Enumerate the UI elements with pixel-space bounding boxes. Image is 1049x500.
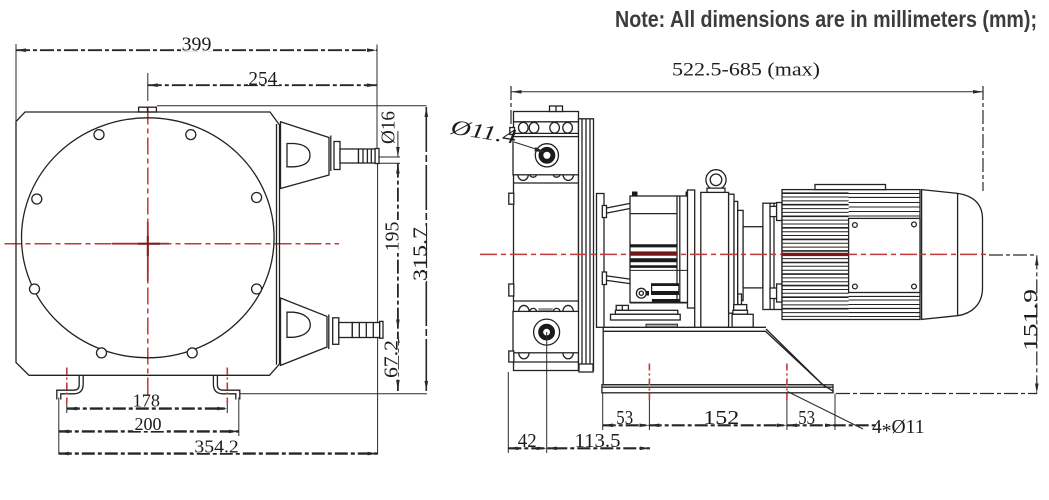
svg-text:254: 254 (248, 68, 277, 90)
svg-text:67.2: 67.2 (381, 340, 403, 378)
svg-text:200: 200 (135, 414, 162, 434)
svg-text:195: 195 (382, 222, 404, 252)
svg-text:522.5-685 (max): 522.5-685 (max) (672, 60, 820, 81)
svg-text:113.5: 113.5 (575, 430, 621, 452)
svg-text:Ø16: Ø16 (378, 111, 400, 144)
svg-text:42: 42 (518, 430, 537, 452)
svg-text:53: 53 (798, 407, 815, 429)
svg-text:Note: All dimensions are in mi: Note: All dimensions are in millimeters … (615, 6, 1037, 32)
svg-text:315.7: 315.7 (409, 227, 431, 281)
svg-text:354.2: 354.2 (194, 437, 238, 457)
svg-text:151.9: 151.9 (1020, 289, 1042, 351)
svg-text:399: 399 (182, 34, 212, 56)
svg-text:178: 178 (133, 391, 161, 411)
svg-text:152: 152 (703, 407, 739, 429)
svg-text:53: 53 (616, 407, 633, 429)
